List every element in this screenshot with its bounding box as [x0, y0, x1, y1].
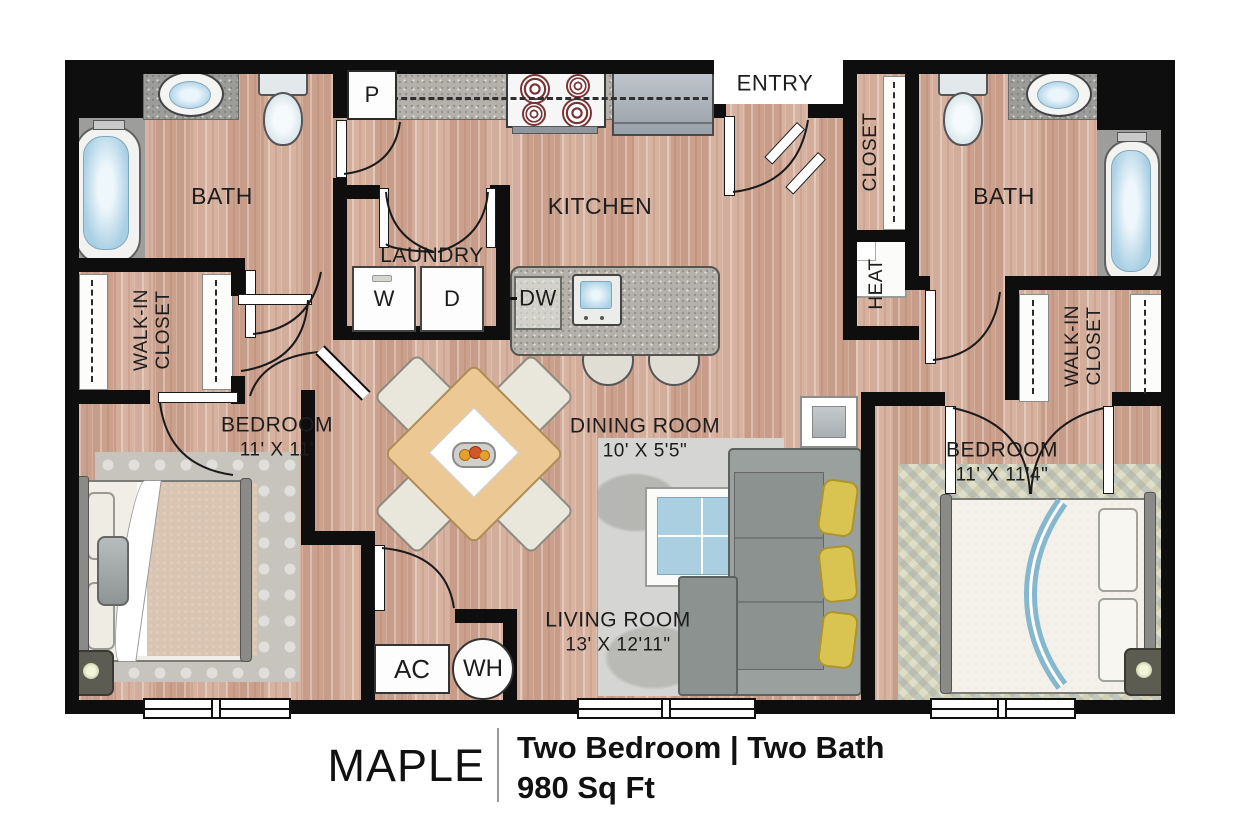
island-sink-icon [572, 274, 622, 326]
wall [301, 531, 375, 545]
room-label-kitchen: KITCHEN [548, 192, 652, 220]
pantry-label: P [365, 82, 380, 108]
pantry-box: P [347, 70, 397, 120]
room-label-bedroom-left: BEDROOM 11' X 11' [221, 413, 333, 462]
wall [496, 185, 510, 340]
refrigerator-icon [612, 66, 714, 136]
footboard [940, 494, 952, 694]
bathtub-icon [1104, 140, 1160, 286]
title-divider [497, 728, 499, 802]
closet-door-panel [1019, 294, 1049, 402]
door-leaf [925, 290, 936, 364]
bedroom-left-name: BEDROOM [221, 413, 333, 439]
wall [1005, 290, 1019, 400]
floor-plan-page: W D P [0, 0, 1240, 825]
room-label-walkin-right: WALK-IN CLOSET [1062, 305, 1106, 387]
bed-bench [97, 536, 129, 606]
closet-door-panel [883, 76, 907, 230]
water-heater-circle: WH [452, 638, 514, 700]
dishwasher-label: DW [519, 286, 557, 313]
plan-name: MAPLE [300, 740, 485, 792]
room-label-laundry: LAUNDRY [380, 243, 483, 269]
closet-rod-dashed [1032, 300, 1034, 394]
door-leaf [238, 294, 312, 305]
door-leaf [374, 545, 385, 611]
wall [843, 230, 919, 242]
wall [65, 390, 150, 404]
room-label-bedroom-right: BEDROOM 11' X 11'4" [946, 438, 1058, 487]
bedroom-right-name: BEDROOM [946, 438, 1058, 464]
living-dims: 13' X 12'11" [545, 633, 691, 656]
window-mullion [211, 698, 221, 719]
room-label-bath-left: BATH [191, 182, 253, 210]
plan-area: 980 Sq Ft [517, 770, 655, 806]
ac-label: AC [394, 654, 430, 685]
dryer-box: D [420, 266, 484, 332]
bathtub-faucet-icon [93, 120, 125, 130]
plan-spec: Two Bedroom | Two Bath [517, 730, 884, 766]
window [577, 698, 756, 719]
wall [231, 258, 245, 296]
wall [905, 276, 930, 290]
door-leaf [1103, 406, 1114, 494]
sofa-pillow [817, 610, 860, 670]
wall [1161, 60, 1175, 714]
room-label-entry: ENTRY [737, 71, 814, 98]
wall [333, 185, 380, 199]
window-mullion [661, 698, 671, 719]
water-heater-label: WH [463, 655, 503, 683]
wall [65, 258, 245, 272]
window [143, 698, 291, 719]
wall [361, 545, 375, 700]
bathtub-faucet-icon [1117, 132, 1147, 142]
walkin-left-line2: CLOSET [153, 289, 175, 371]
door-leaf [724, 116, 735, 196]
pillow-icon [1098, 508, 1138, 592]
sink-icon [1026, 71, 1092, 117]
closet-rod-dashed [215, 280, 217, 382]
door-leaf [158, 392, 238, 403]
bedroom-left-dims: 11' X 11' [221, 438, 333, 461]
dining-name: DINING ROOM [570, 414, 720, 440]
wall [861, 392, 875, 700]
wall [843, 74, 857, 340]
wall [65, 60, 143, 118]
washer-box: W [352, 266, 416, 332]
walkin-right-line2: CLOSET [1084, 305, 1106, 387]
wall [843, 326, 919, 340]
wall [1112, 392, 1175, 406]
closet-rod-dashed [91, 280, 93, 382]
wall [65, 60, 79, 714]
dryer-label: D [444, 286, 460, 312]
washer-label: W [374, 286, 395, 312]
toilet-icon [263, 92, 303, 146]
window [930, 698, 1076, 719]
bathtub-icon [75, 126, 141, 264]
room-label-heat: HEAT [866, 258, 888, 309]
closet-door-panel [1130, 294, 1163, 402]
wall [808, 104, 843, 118]
walkin-right-line1: WALK-IN [1062, 305, 1084, 387]
closet-door-panel [79, 274, 108, 390]
wall [333, 178, 347, 340]
dw-leader-line [505, 297, 517, 300]
footboard [240, 478, 252, 662]
door-leaf [336, 120, 347, 178]
room-label-dining: DINING ROOM 10' X 5'5" [570, 414, 720, 463]
closet-rod-dashed [1144, 300, 1146, 394]
upper-cabinet-dashed-line [392, 97, 708, 100]
sofa-pillow [817, 544, 859, 603]
table-centerpiece [452, 442, 496, 468]
bed-icon [79, 480, 251, 662]
closet-rod-dashed [893, 82, 895, 222]
room-label-bath-right: BATH [973, 182, 1035, 210]
living-name: LIVING ROOM [545, 608, 691, 634]
washer-slot [372, 275, 392, 282]
bed-icon [946, 498, 1150, 694]
room-label-entry-closet: CLOSET [860, 112, 882, 191]
dining-dims: 10' X 5'5" [570, 439, 720, 462]
room-label-living: LIVING ROOM 13' X 12'11" [545, 608, 691, 657]
wall [1005, 276, 1175, 290]
closet-door-panel [202, 274, 233, 390]
bedroom-right-dims: 11' X 11'4" [946, 463, 1058, 486]
door-leaf [379, 188, 389, 248]
bathtub-water [83, 136, 129, 250]
wall [333, 60, 347, 118]
sofa-seat [734, 472, 824, 670]
toilet-icon [943, 92, 983, 146]
stove-handle [512, 126, 598, 134]
wall [1097, 60, 1175, 130]
sink-icon [158, 71, 224, 117]
door-leaf [486, 188, 496, 248]
wall [905, 74, 919, 290]
end-table [800, 396, 858, 448]
room-label-walkin-left: WALK-IN CLOSET [131, 289, 175, 371]
walkin-left-line1: WALK-IN [131, 289, 153, 371]
window-mullion [997, 698, 1007, 719]
ac-box: AC [374, 644, 450, 694]
